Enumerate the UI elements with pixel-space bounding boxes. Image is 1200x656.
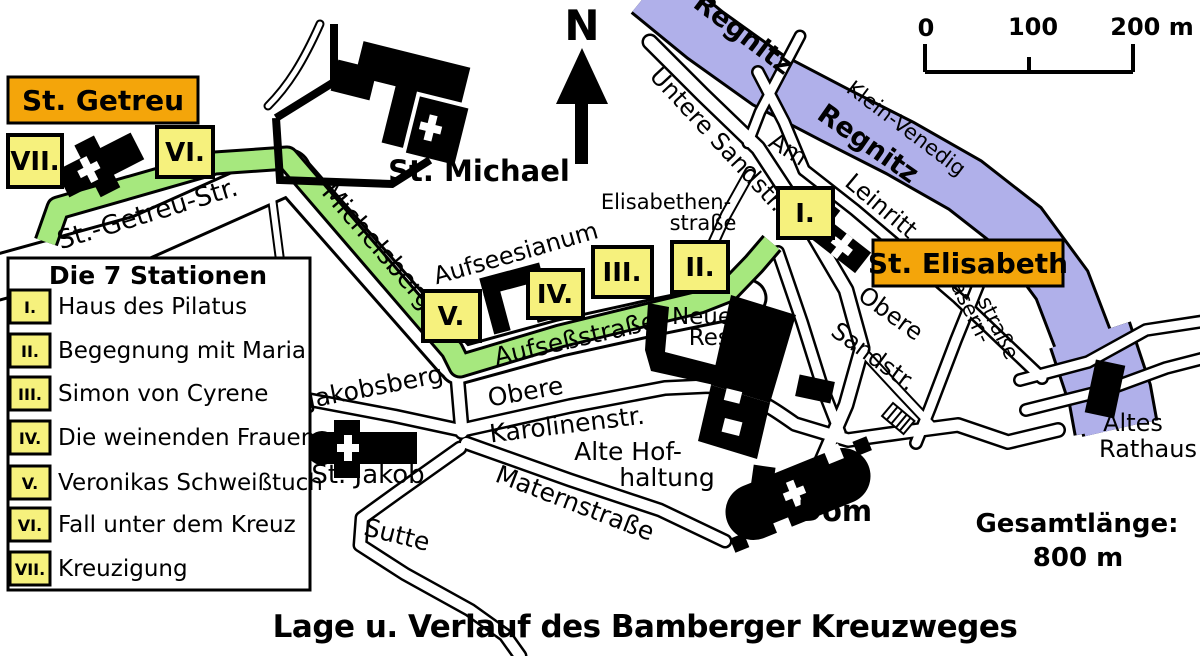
label-st-jakob: St. Jakob (311, 460, 424, 490)
scale-100: 100 (1008, 13, 1058, 41)
legend-station-name: Veronikas Schweißtuch (58, 470, 323, 496)
label-altes-rathaus-2: Rathaus (1099, 435, 1197, 463)
map-title: Lage u. Verlauf des Bamberger Kreuzweges (273, 609, 1018, 645)
svg-text:IV.: IV. (19, 429, 41, 448)
st-elisabeth-label-box: St. Elisabeth (868, 240, 1068, 286)
total-length-value: 800 m (1033, 543, 1123, 573)
station-marker-6: VI. (157, 127, 213, 177)
label-st-getreu: St. Getreu (22, 84, 184, 117)
svg-text:VII.: VII. (15, 560, 45, 579)
north-label: N (564, 1, 599, 50)
station-marker-5: V. (423, 291, 480, 341)
label-elisabethenstrasse-2: straße (670, 211, 737, 235)
legend-row-3: III. Simon von Cyrene (10, 377, 268, 410)
legend-station-name: Die weinenden Frauen (58, 425, 315, 451)
scale-bar: 0 100 200 m (918, 13, 1194, 72)
label-neue-res-2: Res. (689, 325, 737, 351)
svg-text:I.: I. (24, 298, 36, 317)
legend-station-name: Kreuzigung (58, 556, 188, 582)
north-arrow-icon: N (556, 1, 608, 164)
label-altes-rathaus-1: Altes (1103, 409, 1163, 437)
label-st-elisabeth: St. Elisabeth (868, 247, 1068, 280)
legend-station-name: Simon von Cyrene (58, 381, 268, 407)
svg-text:II.: II. (21, 342, 39, 361)
legend-row-1: I. Haus des Pilatus (10, 290, 247, 323)
svg-text:I.: I. (795, 199, 815, 229)
legend-box: Die 7 Stationen I. Haus des Pilatus II. … (8, 258, 323, 590)
total-length: Gesamtlänge: 800 m (975, 509, 1178, 573)
st-michael-building (320, 36, 478, 164)
station-marker-1: I. (778, 188, 833, 238)
svg-text:III.: III. (603, 258, 642, 288)
svg-text:V.: V. (438, 302, 465, 332)
scale-0: 0 (918, 14, 935, 42)
legend-station-name: Fall unter dem Kreuz (58, 512, 296, 538)
label-alte-hofhaltung-2: haltung (619, 463, 714, 492)
svg-text:VII.: VII. (10, 147, 59, 177)
total-length-label: Gesamtlänge: (975, 509, 1178, 539)
station-marker-2: II. (672, 242, 728, 292)
svg-text:VI.: VI. (165, 138, 205, 168)
map-canvas: St.-Getreu-Str. Michelsberg Aufseesianum… (0, 0, 1200, 656)
svg-text:III.: III. (18, 385, 42, 404)
station-marker-4: IV. (528, 270, 583, 318)
scale-200m: 200 m (1110, 13, 1193, 41)
label-dom: Dom (798, 494, 872, 528)
label-alte-hofhaltung-1: Alte Hof- (574, 437, 682, 466)
legend-title: Die 7 Stationen (49, 261, 267, 290)
svg-text:II.: II. (685, 253, 714, 283)
svg-text:V.: V. (22, 474, 38, 493)
svg-text:VI.: VI. (18, 516, 42, 535)
legend-row-7: VII. Kreuzigung (10, 552, 188, 585)
station-marker-7: VII. (8, 135, 62, 187)
label-st-michael: St. Michael (388, 154, 570, 188)
station-marker-3: III. (593, 247, 652, 297)
legend-station-name: Begegnung mit Maria (58, 338, 306, 364)
bamberg-kreuzweg-map: St.-Getreu-Str. Michelsberg Aufseesianum… (0, 0, 1200, 656)
svg-text:IV.: IV. (537, 280, 573, 310)
legend-station-name: Haus des Pilatus (58, 294, 247, 320)
st-getreu-label-box: St. Getreu (8, 77, 198, 123)
